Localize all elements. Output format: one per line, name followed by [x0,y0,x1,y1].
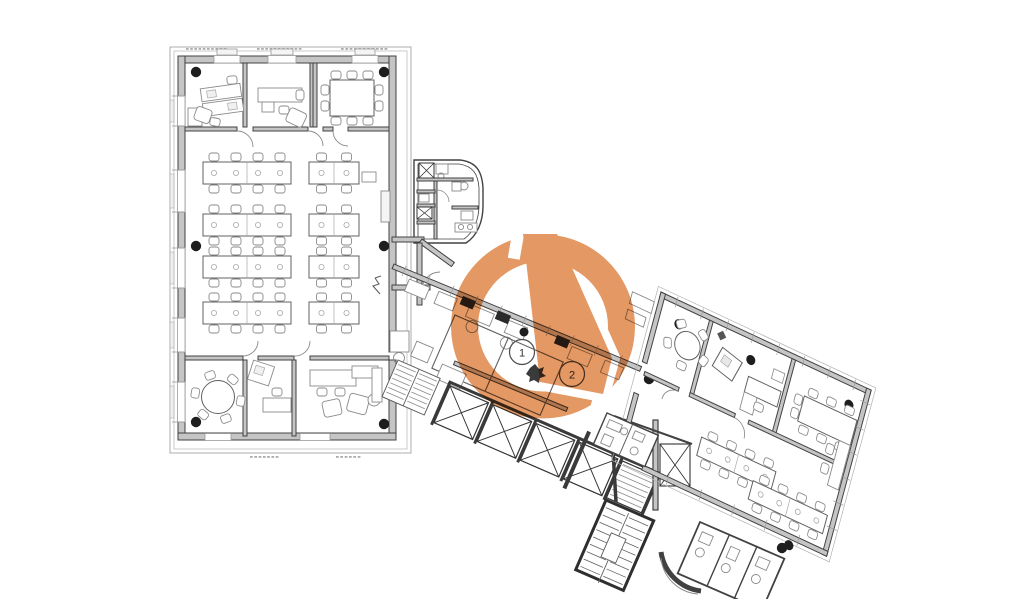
svg-text:1: 1 [519,348,525,360]
